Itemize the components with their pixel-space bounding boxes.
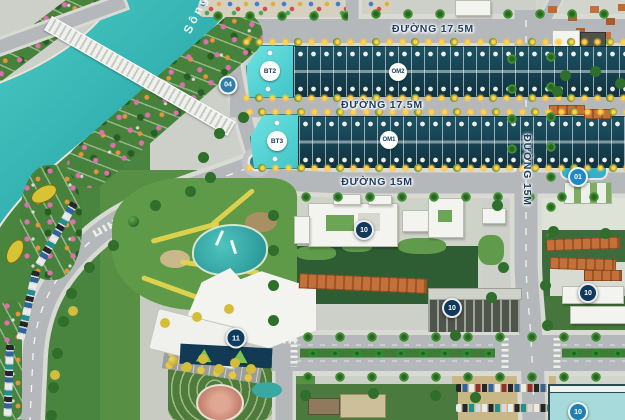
building-edge xyxy=(428,288,522,300)
lot-label-bt2: BT2 xyxy=(260,61,280,81)
lot-marker-dot xyxy=(275,121,280,126)
masterplan-map: Sông xyxy=(0,0,625,420)
boulevard-trees xyxy=(292,371,622,383)
zone-badge-10-south: 10 xyxy=(568,402,588,420)
street-trees xyxy=(506,44,518,174)
street-trees xyxy=(545,42,557,237)
terraced-building xyxy=(570,306,625,324)
scattered-trees xyxy=(128,216,139,227)
lawn xyxy=(478,235,504,265)
parking-cars-row xyxy=(456,384,548,392)
lot-marker-dot xyxy=(268,51,273,56)
courtyard xyxy=(326,215,354,231)
garden-pond xyxy=(252,382,282,398)
street-trees xyxy=(360,8,452,20)
lot-label-om1: OM1 xyxy=(380,131,398,149)
zone-badge-10-east: 10 xyxy=(578,283,598,303)
parking-cars-row xyxy=(456,404,548,412)
street-label-duong-15m-vertical: ĐƯỜNG 15M xyxy=(521,134,533,206)
streetlight-tree-row xyxy=(243,106,625,118)
round-plaza xyxy=(196,384,244,420)
rowhouses xyxy=(550,257,616,271)
scattered-yellow-trees xyxy=(168,356,178,366)
streetlight-tree-row xyxy=(240,92,625,104)
lot-label-om2: OM2 xyxy=(389,63,407,81)
rowhouses xyxy=(546,237,620,252)
courtyard xyxy=(438,210,452,222)
courtyard-tan xyxy=(340,394,386,418)
roof-strip xyxy=(550,386,625,393)
west-park-flower-garden xyxy=(20,165,82,280)
streetlight-tree-row xyxy=(243,162,625,174)
zone-badge-04: 04 xyxy=(219,76,238,95)
house xyxy=(308,398,340,415)
lot-marker-dot xyxy=(266,87,271,92)
boulevard-trees xyxy=(292,331,622,343)
rowhouses xyxy=(584,270,622,281)
median-palms xyxy=(563,348,623,359)
lot-marker-dot xyxy=(273,157,278,162)
street-label-duong-15m: ĐƯỜNG 15M xyxy=(341,176,413,188)
zone-badge-01: 01 xyxy=(568,167,588,187)
shophouse-strip-om2 xyxy=(293,46,625,97)
lawn xyxy=(296,246,336,260)
shophouse-strip-om1 xyxy=(298,116,625,168)
lot-label-bt3: BT3 xyxy=(267,131,287,151)
median-palms xyxy=(302,348,496,359)
street-trees xyxy=(202,10,348,22)
street-trees xyxy=(290,191,620,203)
lawn xyxy=(398,238,446,254)
civic-building xyxy=(294,216,310,244)
streetlight-tree-row xyxy=(240,36,625,48)
building xyxy=(482,208,506,224)
street-label-duong-17-5m-mid: ĐƯỜNG 17.5M xyxy=(341,99,423,111)
zone-badge-10-civic: 10 xyxy=(354,220,374,240)
zone-badge-11: 11 xyxy=(226,328,247,349)
street-label-duong-17-5m-top: ĐƯỜNG 17.5M xyxy=(392,23,474,35)
sand-patch xyxy=(160,250,190,268)
street-trees xyxy=(492,8,625,20)
building xyxy=(455,0,491,16)
zone-badge-10-block: 10 xyxy=(442,298,462,318)
